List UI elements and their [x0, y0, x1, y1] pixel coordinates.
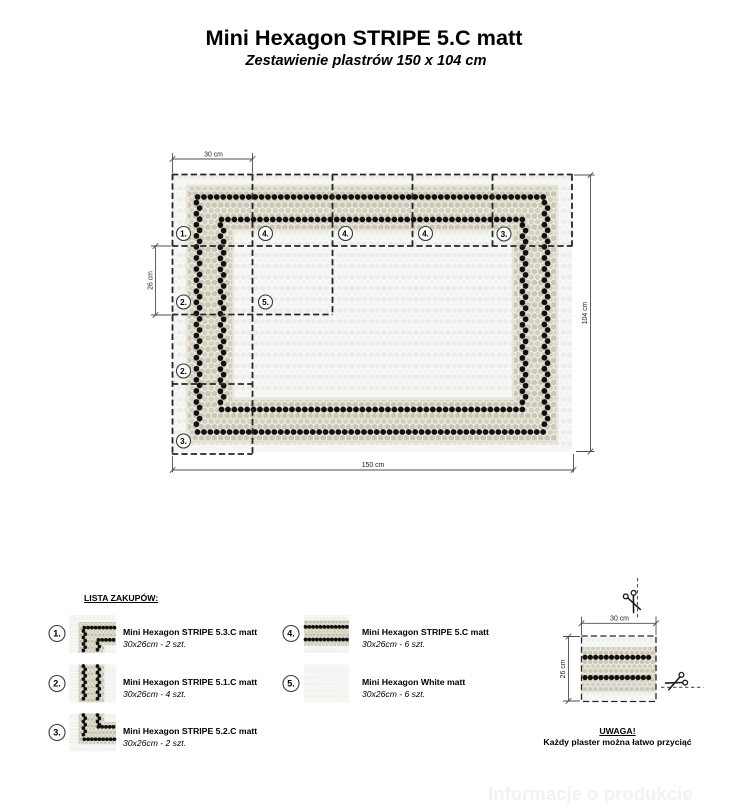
- svg-text:1.: 1.: [53, 629, 61, 639]
- svg-text:2.: 2.: [180, 367, 187, 376]
- svg-text:5.: 5.: [262, 298, 269, 307]
- svg-text:2.: 2.: [180, 298, 187, 307]
- svg-text:4.: 4.: [422, 230, 429, 239]
- svg-text:1.: 1.: [180, 230, 187, 239]
- svg-text:3.: 3.: [180, 437, 187, 446]
- svg-text:30 cm: 30 cm: [610, 616, 629, 623]
- svg-text:4.: 4.: [342, 230, 349, 239]
- svg-text:150 cm: 150 cm: [362, 462, 385, 469]
- svg-text:3.: 3.: [501, 230, 508, 239]
- svg-text:3.: 3.: [53, 728, 61, 738]
- svg-text:26 cm: 26 cm: [148, 271, 155, 290]
- svg-text:104 cm: 104 cm: [582, 301, 589, 324]
- svg-text:26 cm: 26 cm: [560, 659, 567, 678]
- svg-text:5.: 5.: [287, 679, 295, 689]
- svg-text:30 cm: 30 cm: [204, 152, 223, 159]
- svg-text:4.: 4.: [262, 230, 269, 239]
- svg-text:4.: 4.: [287, 629, 295, 639]
- svg-text:2.: 2.: [53, 679, 61, 689]
